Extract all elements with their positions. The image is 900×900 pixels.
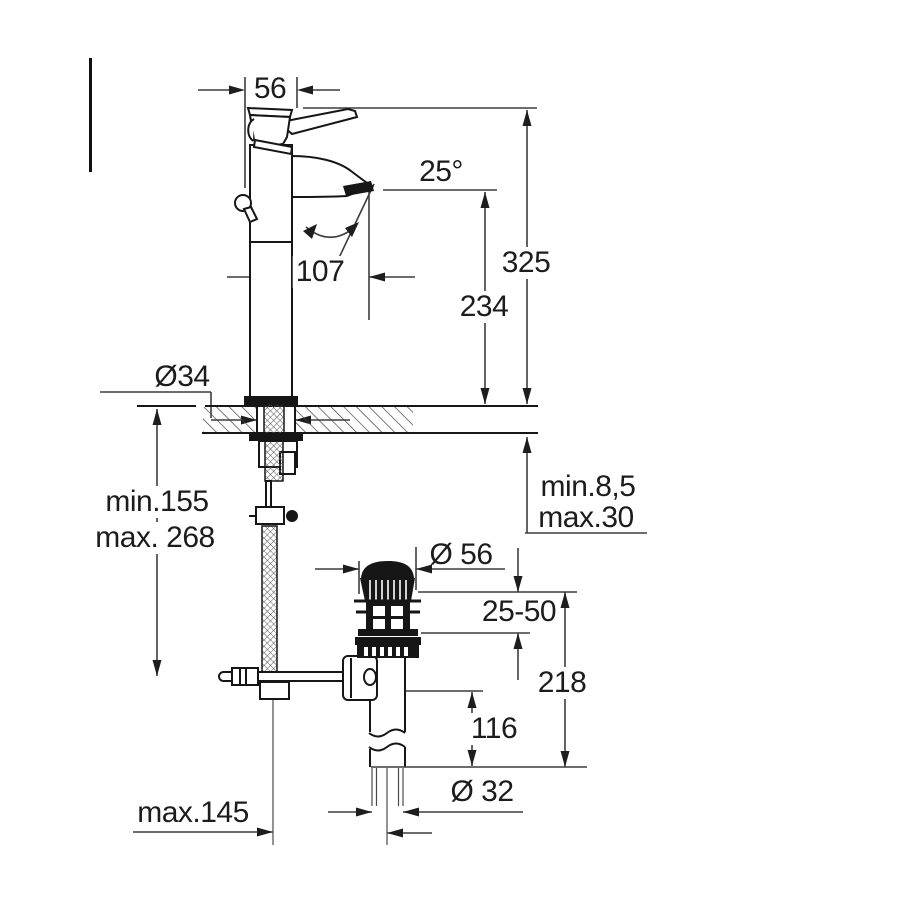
countertop-section (137, 406, 538, 433)
dim-deck-thickness-min: min.8,5 (541, 472, 636, 502)
dim-rod-reach-max: max.145 (137, 798, 249, 828)
dim-hose-length-min: min.155 (102, 486, 211, 518)
dim-waste-flange-diameter: Ø 56 (429, 540, 492, 570)
dim-waste-height: 218 (535, 667, 590, 699)
trap-nut (343, 656, 377, 700)
dim-height-overall: 325 (499, 247, 554, 279)
shank-and-hose (219, 404, 347, 699)
dim-tailpipe-diameter: Ø 32 (450, 777, 513, 807)
dim-basin-clamp-range: 25-50 (479, 596, 559, 628)
dim-spout-projection: 107 (293, 256, 348, 288)
pop-up-rod (266, 481, 271, 508)
technical-drawing-canvas: 56 25° 325 107 234 Ø34 min.155 max. 268 … (0, 0, 900, 900)
dim-hole-diameter: Ø34 (154, 362, 209, 392)
drawing-linework (0, 0, 900, 900)
scan-artifact-line (89, 58, 92, 172)
dim-hose-length-max: max. 268 (92, 522, 217, 554)
flexible-hose (262, 526, 277, 672)
dim-tailpipe-length: 116 (468, 713, 520, 745)
dim-deck-thickness-max: max.30 (538, 503, 633, 533)
dim-spout-angle: 25° (419, 157, 463, 187)
pipe-break (369, 730, 405, 737)
stopper-dome (361, 561, 414, 578)
dimension-lines (100, 77, 647, 845)
rod-clevis (256, 507, 284, 524)
dim-width-top: 56 (254, 74, 286, 104)
dim-spout-height: 234 (457, 291, 512, 323)
lever-handle (285, 109, 357, 134)
